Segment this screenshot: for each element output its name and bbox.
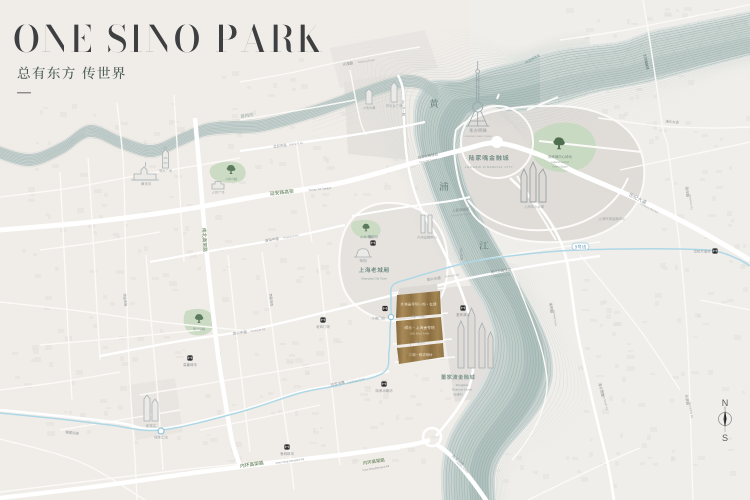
svg-text:Shanghai Old Town: Shanghai Old Town — [361, 277, 387, 281]
svg-text:Green Space: Green Space — [552, 165, 568, 169]
svg-text:Financial Center: Financial Center — [452, 388, 472, 392]
svg-text:LUJIAZUI FINANCIAL CITY: LUJIAZUI FINANCIAL CITY — [465, 165, 514, 169]
svg-text:Lujiazui Central: Lujiazui Central — [551, 160, 569, 164]
svg-text:ORIENTAL PEARL TOWER: ORIENTAL PEARL TOWER — [464, 135, 491, 138]
svg-text:S: S — [722, 433, 728, 443]
svg-text:Dongjiadu: Dongjiadu — [456, 383, 469, 387]
